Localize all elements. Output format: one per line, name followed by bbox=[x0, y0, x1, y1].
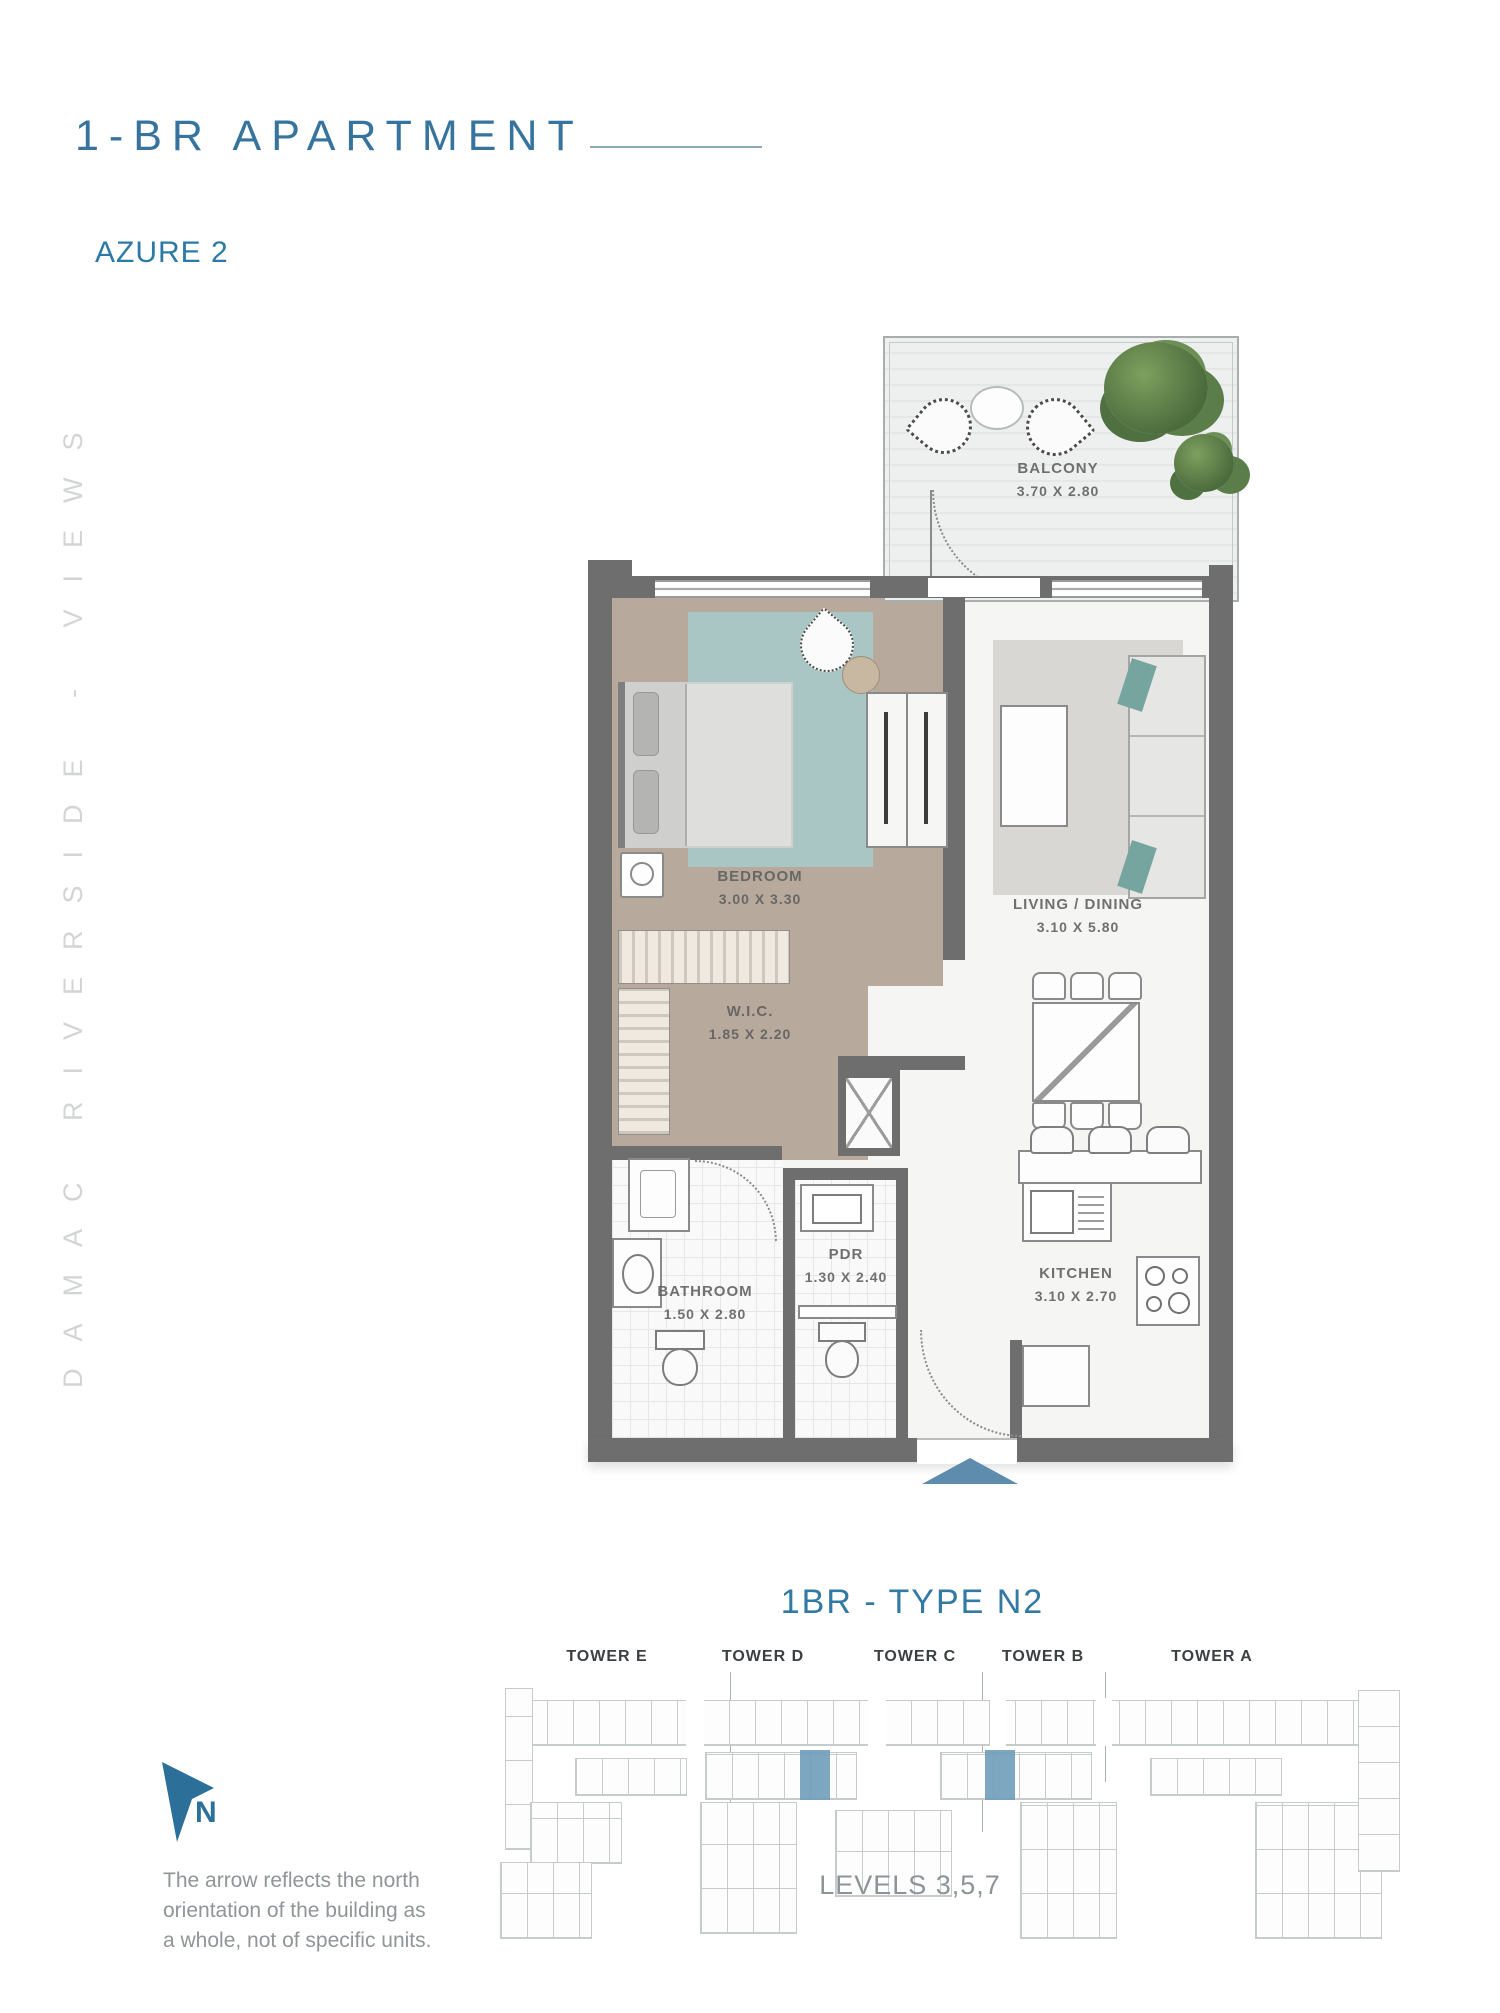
shower bbox=[628, 1158, 690, 1232]
pdr-shelf bbox=[798, 1305, 897, 1319]
highlighted-unit-tower-d bbox=[800, 1750, 830, 1800]
site-unit-row bbox=[520, 1700, 1392, 1746]
tower-label-b: TOWER B bbox=[993, 1648, 1093, 1666]
site-gap bbox=[868, 1698, 886, 1746]
room-name: W.I.C. bbox=[680, 1000, 820, 1023]
page-subtitle: AZURE 2 bbox=[95, 236, 229, 270]
north-arrow-icon bbox=[150, 1752, 230, 1847]
site-wing bbox=[700, 1802, 797, 1934]
wardrobe bbox=[866, 692, 908, 848]
pillow bbox=[633, 692, 659, 756]
dining-table bbox=[1032, 1002, 1140, 1102]
tower-label-a: TOWER A bbox=[1162, 1648, 1262, 1666]
room-dims: 3.00 X 3.30 bbox=[690, 888, 830, 911]
north-note-line: orientation of the building as bbox=[163, 1896, 431, 1926]
site-right-column bbox=[1358, 1690, 1400, 1872]
room-dims: 1.30 X 2.40 bbox=[786, 1266, 906, 1289]
pillow bbox=[633, 770, 659, 834]
room-label-bedroom: BEDROOM 3.00 X 3.30 bbox=[690, 865, 830, 911]
site-cluster bbox=[940, 1752, 1092, 1800]
entrance-marker bbox=[922, 1458, 1018, 1484]
site-left-column bbox=[505, 1688, 533, 1850]
room-dims: 3.70 X 2.80 bbox=[983, 480, 1133, 503]
north-note: The arrow reflects the north orientation… bbox=[163, 1866, 431, 1956]
side-table bbox=[842, 656, 880, 694]
room-name: BEDROOM bbox=[690, 865, 830, 888]
site-gap bbox=[1096, 1698, 1112, 1746]
room-name: PDR bbox=[786, 1243, 906, 1266]
page-title: 1-BR APARTMENT bbox=[75, 112, 584, 161]
balcony-table bbox=[970, 386, 1024, 430]
tower-label-e: TOWER E bbox=[557, 1648, 657, 1666]
tower-label-d: TOWER D bbox=[713, 1648, 813, 1666]
room-label-pdr: PDR 1.30 X 2.40 bbox=[786, 1243, 906, 1289]
shower-tray bbox=[640, 1170, 676, 1218]
site-wing bbox=[500, 1862, 592, 1939]
north-label: N bbox=[195, 1796, 217, 1830]
room-name: LIVING / DINING bbox=[998, 893, 1158, 916]
dining-chair bbox=[1108, 972, 1142, 1000]
bar-stool bbox=[1146, 1126, 1190, 1154]
room-label-bathroom: BATHROOM 1.50 X 2.80 bbox=[635, 1280, 775, 1326]
room-dims: 1.85 X 2.20 bbox=[680, 1023, 820, 1046]
wall-pdr-left bbox=[783, 1168, 795, 1440]
levels-label: LEVELS 3,5,7 bbox=[760, 1870, 1060, 1901]
kitchen-bar-counter bbox=[1018, 1150, 1202, 1184]
sofa bbox=[1128, 655, 1206, 899]
wall-corridor bbox=[838, 1056, 965, 1070]
room-label-balcony: BALCONY 3.70 X 2.80 bbox=[983, 457, 1133, 503]
wall-left bbox=[588, 576, 612, 1462]
kitchen-cabinet bbox=[1022, 1345, 1090, 1407]
north-note-line: a whole, not of specific units. bbox=[163, 1926, 431, 1956]
title-rule bbox=[590, 146, 762, 148]
tower-label-c: TOWER C bbox=[865, 1648, 965, 1666]
north-note-line: The arrow reflects the north bbox=[163, 1866, 431, 1896]
plant-icon bbox=[1104, 342, 1208, 434]
wic-closet-left bbox=[618, 988, 670, 1135]
coffee-table bbox=[1000, 705, 1068, 827]
toilet bbox=[818, 1322, 866, 1342]
highlighted-unit-tower-b bbox=[985, 1750, 1015, 1800]
service-shaft bbox=[838, 1070, 900, 1156]
wall-bottom bbox=[588, 1438, 1233, 1462]
nightstand-lamp bbox=[630, 862, 654, 886]
plant-icon bbox=[1174, 434, 1234, 492]
site-cluster bbox=[705, 1752, 857, 1800]
room-label-living: LIVING / DINING 3.10 X 5.80 bbox=[998, 893, 1158, 939]
room-label-kitchen: KITCHEN 3.10 X 2.70 bbox=[1006, 1262, 1146, 1308]
kitchen-sink-counter bbox=[1022, 1182, 1112, 1242]
wall-pdr-right bbox=[896, 1168, 908, 1440]
wall-pdr-top bbox=[783, 1168, 908, 1180]
site-gap bbox=[686, 1698, 704, 1746]
site-cluster bbox=[575, 1758, 687, 1796]
wardrobe bbox=[906, 692, 948, 848]
side-brand-text: DAMAC RIVERSIDE - VIEWS bbox=[58, 378, 104, 1388]
room-label-wic: W.I.C. 1.85 X 2.20 bbox=[680, 1000, 820, 1046]
kitchen-sink bbox=[1030, 1190, 1074, 1234]
living-window bbox=[1052, 580, 1202, 598]
bar-stool bbox=[1030, 1126, 1074, 1154]
bed bbox=[618, 682, 793, 848]
dining-chair bbox=[1070, 972, 1104, 1000]
blanket bbox=[685, 684, 791, 846]
balcony-door-opening bbox=[928, 578, 1040, 597]
room-name: BALCONY bbox=[983, 457, 1133, 480]
site-cluster bbox=[1150, 1758, 1282, 1796]
nightstand bbox=[620, 852, 664, 898]
bedroom-window bbox=[655, 580, 870, 598]
wall-right bbox=[1209, 565, 1233, 1462]
bar-stool bbox=[1088, 1126, 1132, 1154]
toilet bbox=[825, 1340, 859, 1378]
unit-type-title: 1BR - TYPE N2 bbox=[740, 1583, 1085, 1622]
drain-rack bbox=[1078, 1192, 1104, 1230]
room-name: KITCHEN bbox=[1006, 1262, 1146, 1285]
room-dims: 3.10 X 5.80 bbox=[998, 916, 1158, 939]
site-gap bbox=[990, 1698, 1006, 1746]
room-name: BATHROOM bbox=[635, 1280, 775, 1303]
pdr-sink bbox=[812, 1194, 862, 1224]
toilet bbox=[662, 1348, 698, 1386]
room-dims: 3.10 X 2.70 bbox=[1006, 1285, 1146, 1308]
room-dims: 1.50 X 2.80 bbox=[635, 1303, 775, 1326]
toilet bbox=[655, 1330, 705, 1350]
site-wing bbox=[530, 1802, 622, 1864]
wic-closet-top bbox=[618, 930, 790, 984]
dining-chair bbox=[1032, 972, 1066, 1000]
pdr-sink-counter bbox=[800, 1184, 874, 1232]
